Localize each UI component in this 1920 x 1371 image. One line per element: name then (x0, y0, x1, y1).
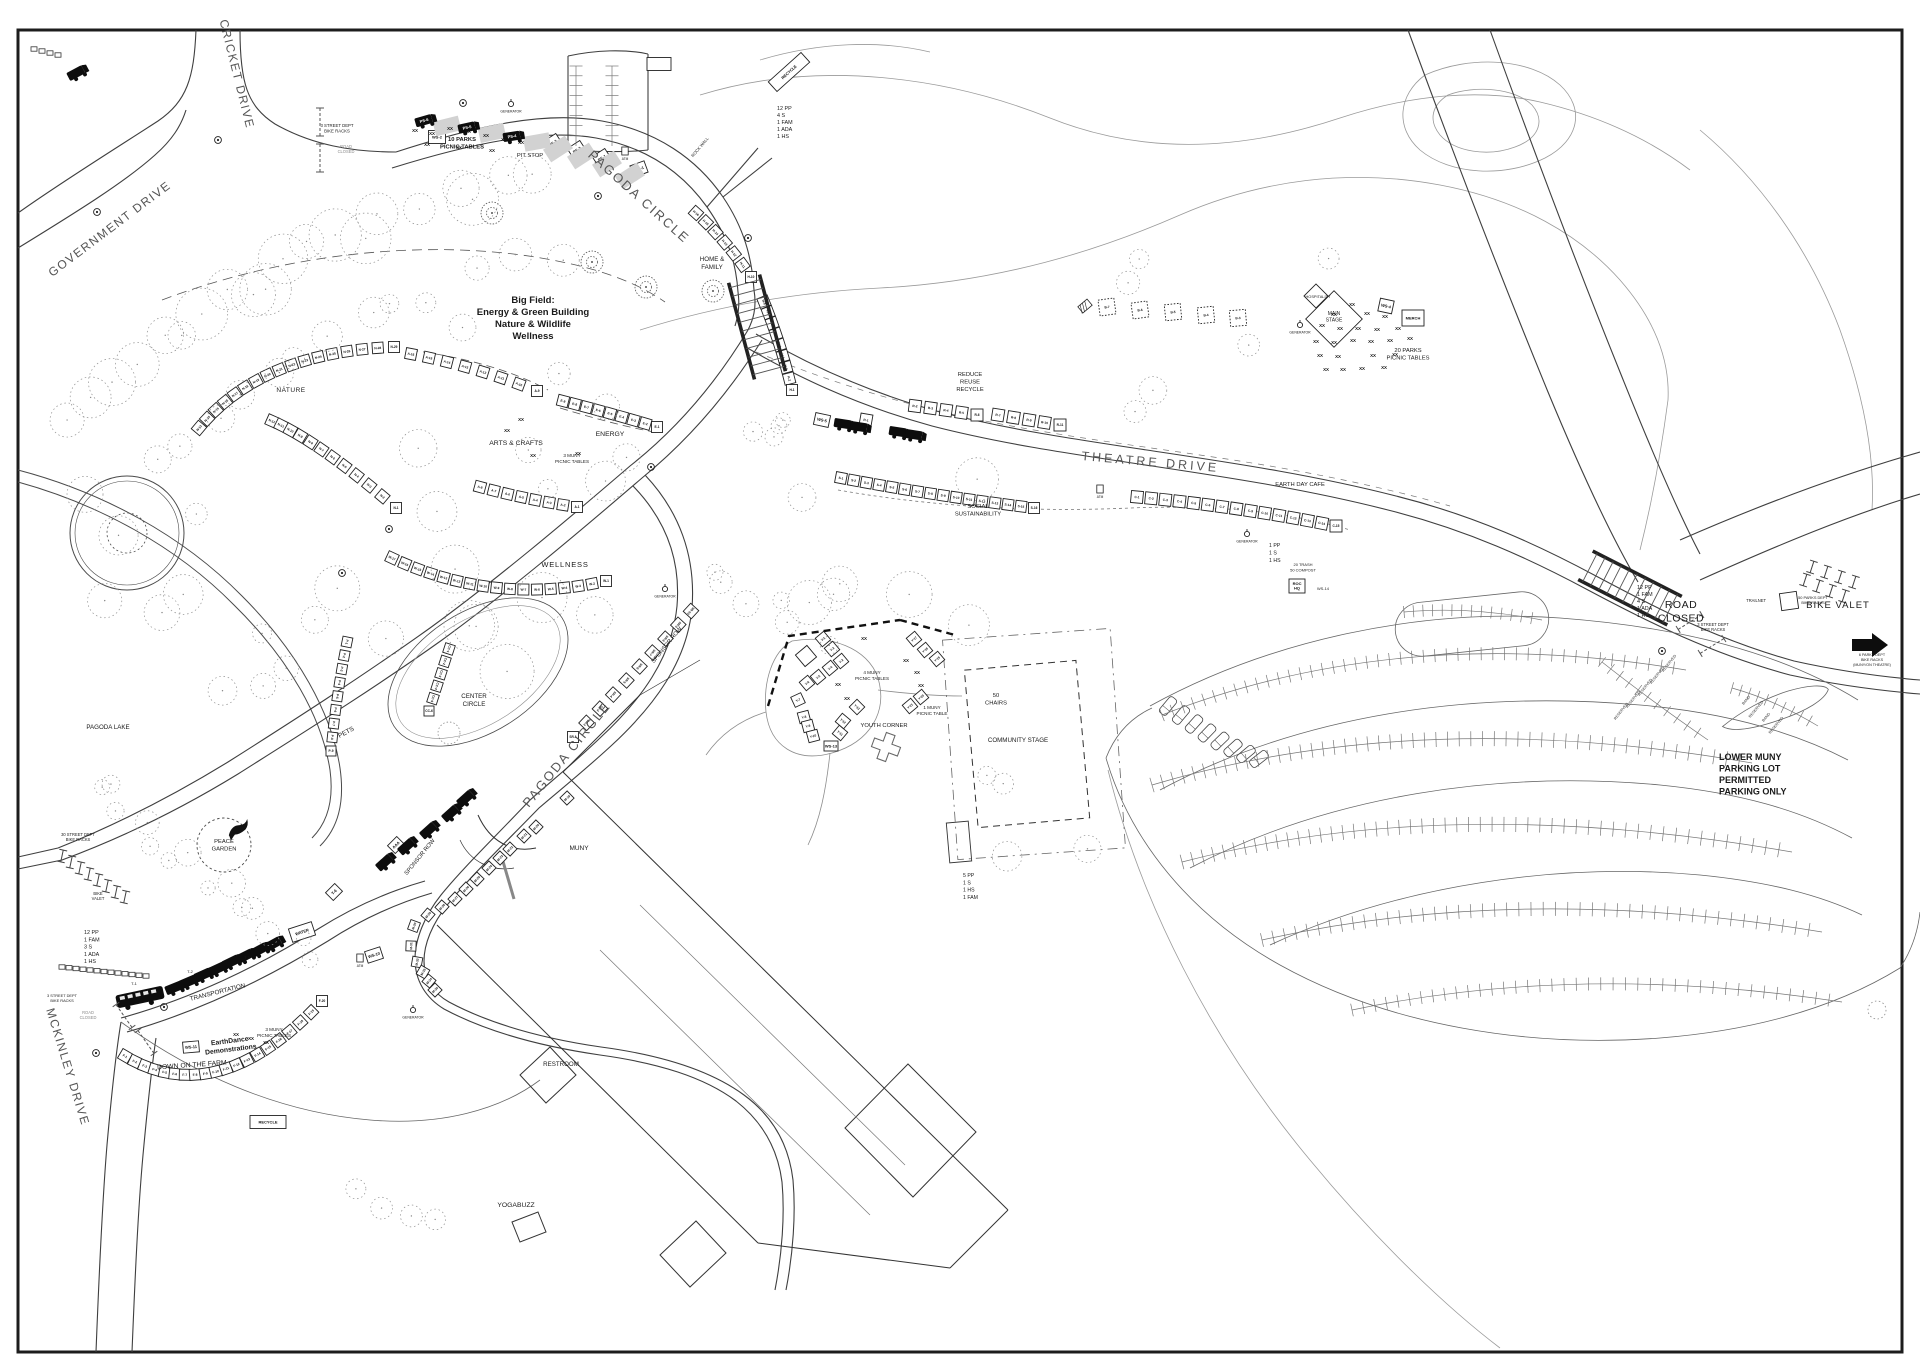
bike-rack-icon (115, 971, 121, 975)
picnic-table-icon: XX (424, 142, 430, 147)
booth: P-1 (341, 636, 353, 648)
info-box (1779, 591, 1798, 610)
booth: A-4 (529, 493, 542, 506)
bike-rack-icon (108, 970, 114, 974)
booth: A-5 (515, 491, 528, 504)
booth: E-3 (627, 413, 641, 427)
booth: S-4 (873, 479, 886, 492)
svg-text:R-2: R-2 (912, 404, 918, 409)
booth: R-3 (924, 401, 938, 415)
booth: N-23 (298, 354, 312, 368)
picnic-table-icon: XX (465, 129, 471, 134)
booth: C-12 (1286, 511, 1300, 525)
booth: W-9 (490, 582, 502, 594)
booth: F-7 (179, 1069, 190, 1080)
svg-text:F-6: F-6 (172, 1072, 177, 1077)
svg-text:B-7: B-7 (1104, 305, 1110, 310)
svg-text:B-3: B-3 (1235, 316, 1241, 320)
svg-text:S-9: S-9 (940, 493, 946, 498)
booth: N-1 (391, 503, 402, 514)
booth: C-10 (1258, 506, 1272, 520)
booth: N-25 (326, 348, 339, 361)
picnic-table-icon: XX (1335, 354, 1341, 359)
zone-label: PEACEGARDEN (212, 839, 237, 853)
booth: B-4 (1197, 306, 1215, 324)
booth: P-5 (332, 691, 343, 702)
svg-text:B-5: B-5 (1170, 310, 1176, 315)
svg-text:P-8: P-8 (330, 735, 335, 741)
booth: R-8 (1007, 411, 1021, 425)
picnic-table-icon: XX (1370, 353, 1376, 358)
annotation-label: 30 STREET DEPTBIKE RACKS (61, 832, 95, 842)
svg-text:GENERATOR: GENERATOR (500, 110, 522, 114)
booth: A-13 (458, 360, 472, 374)
zone-label: HOSPITALITY (1305, 294, 1330, 299)
svg-text:C-8: C-8 (1233, 507, 1239, 512)
bike-rack-icon (31, 47, 37, 51)
picnic-table-icon: XX (248, 1036, 254, 1041)
zone-label: NATURE (276, 387, 305, 394)
zone-label: CENTERCIRCLE (461, 693, 487, 708)
svg-text:A-9: A-9 (534, 389, 539, 393)
booth: E-1 (652, 422, 663, 433)
booth: S-13 (989, 497, 1001, 509)
zone-label: YOUTH CORNER (860, 723, 907, 729)
svg-text:B-4: B-4 (1203, 313, 1209, 318)
svg-text:M-31: M-31 (409, 942, 413, 950)
booth: M-31 (406, 941, 416, 951)
booth: A-1 (572, 502, 583, 513)
booth: S-2 (847, 474, 860, 487)
booth: P-2 (339, 650, 351, 662)
svg-text:E-1: E-1 (655, 425, 660, 429)
svg-text:ATM: ATM (1097, 495, 1104, 499)
svg-text:R-4: R-4 (943, 408, 949, 413)
svg-text:S-5: S-5 (889, 485, 895, 490)
booth: A-2 (557, 499, 570, 512)
picnic-table-icon: XX (1355, 326, 1361, 331)
info-box (647, 58, 671, 71)
annotation-label: T-2 (187, 969, 194, 974)
picnic-table-icon: XX (1407, 336, 1413, 341)
svg-text:W-8: W-8 (507, 587, 513, 591)
booth: R-7 (991, 408, 1005, 422)
parking-stall-tick (1663, 978, 1664, 991)
booth: A-14 (440, 355, 453, 368)
annotation-label: TRAILNET (1746, 598, 1766, 603)
booth: S-3 (860, 476, 873, 489)
booth: E-2 (638, 417, 652, 431)
booth: A-9 (532, 386, 543, 397)
svg-text:R-9: R-9 (1026, 418, 1032, 423)
booth: C-6 (1201, 498, 1214, 511)
picnic-table-icon: XX (412, 128, 418, 133)
bike-rack-icon (136, 973, 142, 977)
svg-text:W-9: W-9 (493, 586, 499, 591)
booth: E-9 (556, 394, 569, 407)
svg-text:GENERATOR: GENERATOR (402, 1016, 424, 1020)
booth: B-3 (1229, 309, 1246, 326)
svg-text:RECYCLE: RECYCLE (258, 1119, 277, 1124)
booth: S-6 (898, 483, 911, 496)
booth: W-7 (518, 584, 529, 595)
svg-text:P-4: P-4 (337, 680, 342, 686)
booth: S-5 (886, 481, 899, 494)
booth: A-8 (473, 480, 486, 493)
booth: N-26 (341, 345, 353, 357)
svg-text:P-6: P-6 (333, 707, 338, 713)
picnic-table-icon: XX (1381, 365, 1387, 370)
svg-text:C-15: C-15 (1333, 524, 1340, 528)
zone-label: PIT STOP (517, 153, 543, 159)
zone-label: HOME &FAMILY (700, 256, 725, 271)
booth: F-20 (317, 996, 328, 1007)
booth: P-4 (334, 677, 345, 688)
booth: A-15 (422, 351, 435, 364)
zone-label: WELLNESS (541, 560, 588, 569)
picnic-table-icon: XX (1331, 340, 1337, 345)
booth: R-2 (908, 399, 921, 412)
zone-label: RESTROOM (543, 1061, 579, 1068)
svg-text:P-5: P-5 (335, 693, 340, 699)
booth: W-2 (586, 577, 599, 590)
picnic-table-icon: XX (447, 126, 453, 131)
booth: S-10 (950, 491, 962, 503)
booth: C-14 (1315, 516, 1329, 530)
bike-rack-icon (101, 969, 107, 973)
booth: S-16 (1029, 503, 1040, 514)
booth: A-6 (501, 487, 514, 500)
info-box: ROCHQ (1289, 579, 1305, 593)
zone-label: PAGODA LAKE (86, 724, 129, 731)
picnic-table-icon: XX (1368, 339, 1374, 344)
zone-label: ROADCLOSED (1658, 599, 1704, 625)
svg-text:W-5: W-5 (548, 587, 554, 591)
zone-label: REDUCEREUSERECYCLE (956, 372, 984, 393)
booth: N-28 (372, 342, 384, 354)
svg-text:S-8: S-8 (928, 491, 934, 496)
booth: S-9 (937, 489, 950, 502)
atm-icon: ATM (1097, 485, 1104, 499)
atm-icon: ATM (357, 954, 364, 968)
info-box: WS-13 (824, 741, 838, 751)
picnic-table-icon: XX (518, 140, 524, 145)
info-box: MERCH (1402, 310, 1424, 326)
svg-text:W-4: W-4 (561, 586, 567, 591)
booth: C-11 (1272, 509, 1286, 523)
booth: E-5 (603, 407, 617, 421)
zone-label: ARTS & CRAFTS (489, 440, 543, 447)
picnic-table-icon: XX (1319, 323, 1325, 328)
picnic-table-icon: XX (1340, 367, 1346, 372)
picnic-table-icon: XX (903, 658, 909, 663)
booth: E-8 (568, 397, 581, 410)
svg-text:F-8: F-8 (193, 1073, 198, 1077)
booth: R-6 (971, 409, 983, 421)
booth: P-7 (328, 718, 339, 729)
svg-text:A-2: A-2 (560, 503, 566, 508)
picnic-table-icon: XX (1317, 353, 1323, 358)
booth: B-7 (1098, 298, 1116, 316)
booth: C-5 (1187, 496, 1200, 509)
bike-rack-icon (122, 972, 128, 976)
svg-text:C-4: C-4 (1177, 499, 1183, 504)
picnic-table-icon: XX (1313, 339, 1319, 344)
svg-text:S-6: S-6 (902, 487, 908, 492)
svg-text:CC-6: CC-6 (425, 709, 433, 713)
booth: E-7 (580, 400, 593, 413)
booth: B-5 (1164, 303, 1182, 321)
picnic-table-icon: XX (1323, 367, 1329, 372)
picnic-table-icon: XX (1374, 327, 1380, 332)
booth: C-15 (1330, 520, 1342, 532)
booth: R-9 (1022, 413, 1036, 427)
booth: S-7 (911, 485, 924, 498)
booth: S-14 (1002, 499, 1014, 511)
picnic-table-icon: XX (1359, 366, 1365, 371)
svg-text:GENERATOR: GENERATOR (654, 595, 676, 599)
svg-text:GENERATOR: GENERATOR (1289, 331, 1311, 335)
annotation-label: WS-14 (1317, 586, 1330, 591)
svg-text:WS-13: WS-13 (825, 743, 838, 748)
booth: C-3 (1159, 493, 1172, 506)
booth: C-13 (1300, 514, 1314, 528)
svg-text:S-7: S-7 (915, 489, 921, 494)
svg-text:C-7: C-7 (1219, 505, 1225, 510)
svg-text:R-8: R-8 (1011, 415, 1017, 420)
svg-text:W-7: W-7 (520, 588, 526, 592)
svg-text:R-11: R-11 (1057, 423, 1064, 427)
zone-label: ENERGY (596, 431, 625, 438)
bike-rack-icon (73, 966, 79, 970)
zone-label: EARTH DAY CAFE (1275, 482, 1325, 488)
booth: H-1 (787, 385, 798, 396)
picnic-table-icon: XX (1349, 302, 1355, 307)
svg-text:P-7: P-7 (331, 721, 336, 727)
picnic-table-icon: XX (518, 417, 524, 422)
picnic-table-icon: XX (504, 428, 510, 433)
booth: S-15 (1015, 500, 1027, 512)
annotation-label: 3 STREET DEPTBIKE RACKS (320, 123, 353, 133)
annotation-label: 20 TRASH50 COMPOST (1290, 562, 1316, 573)
info-box: WS-11 (183, 1041, 200, 1053)
svg-text:ATM: ATM (357, 964, 364, 968)
svg-text:N-28: N-28 (374, 346, 381, 350)
booth: R-5 (955, 406, 969, 420)
svg-text:R-7: R-7 (995, 413, 1001, 418)
svg-text:H-10: H-10 (748, 275, 755, 279)
booth: W-4 (558, 582, 570, 594)
booth: W-1 (601, 576, 612, 587)
svg-text:GENERATOR: GENERATOR (1236, 540, 1258, 544)
booth: W-6 (531, 584, 542, 595)
picnic-table-icon: XX (918, 683, 924, 688)
svg-text:C-5: C-5 (1191, 501, 1197, 506)
svg-text:C-1: C-1 (1134, 495, 1140, 499)
bike-rack-icon (47, 51, 53, 55)
booth: W-8 (504, 583, 516, 595)
booth: Y-10 (806, 729, 819, 742)
svg-text:MERCH: MERCH (1406, 315, 1421, 320)
picnic-table-icon: XX (1395, 326, 1401, 331)
booth: P-9 (326, 746, 336, 756)
svg-text:F-7: F-7 (182, 1073, 187, 1077)
zone-label: MUNY (569, 845, 589, 852)
booth: E-6 (592, 404, 605, 417)
svg-text:C-2: C-2 (1148, 496, 1154, 501)
annotation-label: T-3 (244, 955, 251, 960)
picnic-table-icon: XX (1382, 314, 1388, 319)
booth: C-4 (1173, 495, 1186, 508)
svg-text:W-1: W-1 (603, 579, 609, 583)
booth: B-6 (1131, 301, 1149, 319)
booth: S-1 (835, 472, 848, 485)
booth: N-29 (389, 342, 400, 353)
svg-text:S-16: S-16 (1031, 506, 1038, 510)
atm-icon: ATM (622, 147, 629, 161)
booth: C-7 (1215, 500, 1229, 514)
booth: E-4 (615, 410, 629, 424)
booth: P-3 (336, 663, 348, 675)
picnic-table-icon: XX (1364, 311, 1370, 316)
booth: W-13 (437, 571, 451, 585)
svg-text:R-5: R-5 (959, 410, 965, 415)
svg-text:W-6: W-6 (534, 588, 540, 592)
svg-text:C-9: C-9 (1248, 509, 1254, 514)
booth: A-7 (487, 484, 500, 497)
picnic-table-icon: XX (483, 133, 489, 138)
picnic-table-icon: XX (530, 453, 536, 458)
booth: C-9 (1244, 504, 1258, 518)
picnic-table-icon: XX (914, 670, 920, 675)
booth: N-24 (312, 350, 325, 363)
svg-text:P-9: P-9 (329, 749, 334, 753)
booth: CC-6 (424, 706, 434, 716)
zone-label: COMMUNITY STAGE (988, 737, 1048, 744)
picnic-table-icon: XX (1350, 338, 1356, 343)
annotation-label: 3 STREET DEPTBIKE RACKS (47, 993, 78, 1003)
bike-rack-icon (66, 966, 72, 970)
booth: W-10 (477, 580, 489, 592)
booth: C-1 (1130, 490, 1143, 503)
picnic-table-icon: XX (1387, 338, 1393, 343)
svg-text:B-6: B-6 (1137, 308, 1143, 313)
info-box: WS-5 (813, 413, 830, 428)
booth: N-27 (356, 343, 368, 355)
picnic-table-icon: XX (501, 137, 507, 142)
svg-text:C-3: C-3 (1163, 498, 1169, 503)
booth: R-10 (1038, 416, 1052, 430)
booth: W-5 (545, 583, 557, 595)
info-box: RECYCLE (250, 1116, 286, 1129)
booth: R-11 (1054, 419, 1066, 431)
svg-text:H-1: H-1 (789, 388, 794, 392)
picnic-table-icon: XX (263, 1040, 269, 1045)
bike-rack-icon (87, 968, 93, 972)
bike-rack-icon (80, 967, 86, 971)
picnic-table-icon: XX (429, 131, 435, 136)
annotation-label: T-1 (131, 981, 138, 986)
booth: H-2 (782, 372, 795, 385)
svg-text:N-27: N-27 (358, 347, 366, 352)
booth: S-8 (924, 487, 937, 500)
info-box: WS-4 (1378, 298, 1394, 314)
picnic-table-icon: XX (1337, 326, 1343, 331)
booth: C-8 (1229, 502, 1243, 516)
booth: P-6 (330, 704, 341, 715)
picnic-table-icon: XX (861, 636, 867, 641)
picnic-table-icon: XX (844, 696, 850, 701)
bike-rack-icon (55, 53, 61, 57)
zone-label: YOGABUZZ (497, 1202, 534, 1209)
svg-text:R-6: R-6 (974, 413, 979, 417)
annotation-label: 3 STREET DEPTBIKE RACKS (1697, 622, 1729, 632)
svg-text:N-1: N-1 (393, 506, 398, 510)
bike-rack-icon (94, 969, 100, 973)
svg-text:A-1: A-1 (574, 505, 579, 509)
site-plan-map: N-13N-14N-15N-16N-17N-18N-19N-20N-21N-22… (0, 0, 1920, 1371)
bike-rack-icon (143, 974, 149, 978)
svg-text:C-6: C-6 (1205, 503, 1211, 508)
svg-text:ATM: ATM (622, 157, 629, 161)
booth: C-2 (1145, 492, 1158, 505)
bike-rack-icon (129, 972, 135, 976)
bike-rack-icon (59, 965, 65, 969)
svg-text:F-20: F-20 (319, 999, 326, 1003)
picnic-table-icon: XX (489, 148, 495, 153)
booth: A-16 (405, 348, 418, 361)
site-plan-canvas: N-13N-14N-15N-16N-17N-18N-19N-20N-21N-22… (0, 0, 1920, 1371)
svg-text:F-9: F-9 (203, 1071, 209, 1076)
booth: W-12 (450, 574, 463, 587)
svg-text:R-3: R-3 (928, 406, 934, 411)
annotation-label: 50 PARKS DEPTBIKE RACKS (1798, 595, 1828, 605)
booth: R-4 (939, 403, 953, 417)
svg-text:N-29: N-29 (391, 345, 398, 349)
booth: W-3 (572, 580, 585, 593)
bike-rack-icon (39, 49, 45, 53)
picnic-table-icon: XX (835, 682, 841, 687)
